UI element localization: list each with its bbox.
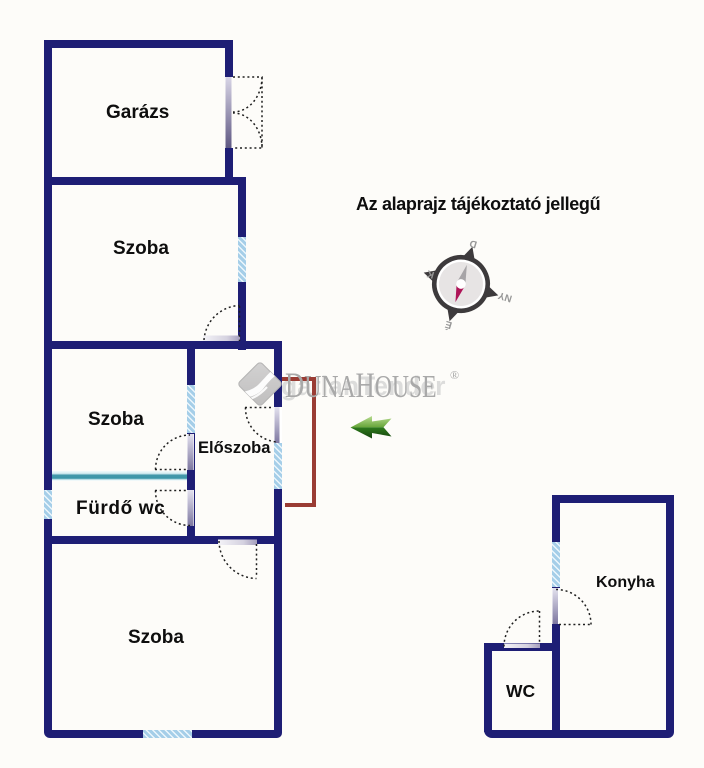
svg-text:É: É [443,318,453,332]
svg-text:D: D [468,237,478,250]
svg-text:NY: NY [497,289,514,304]
